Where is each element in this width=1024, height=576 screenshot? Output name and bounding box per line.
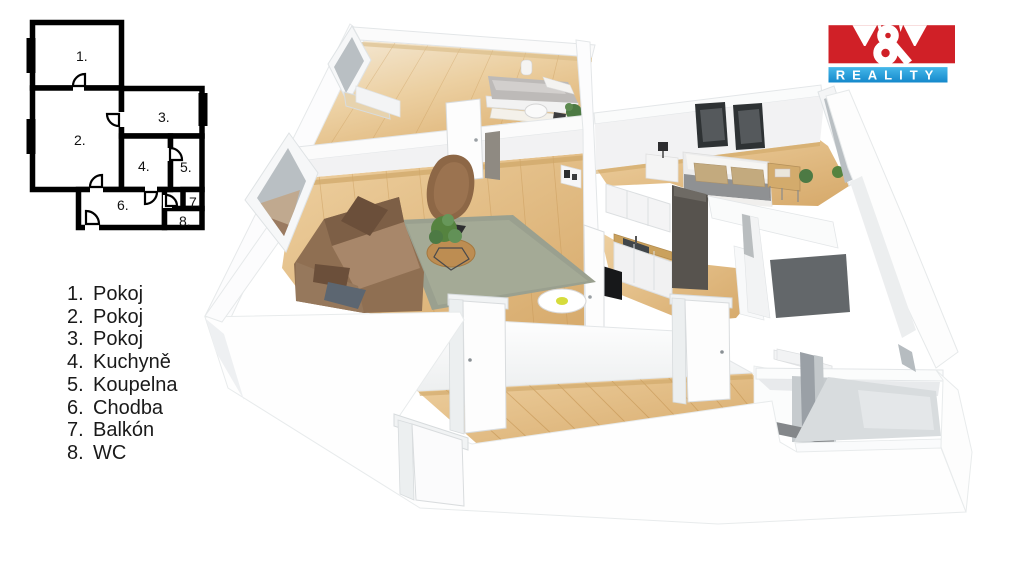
- svg-text:1.: 1.: [76, 48, 88, 64]
- svg-text:8.: 8.: [67, 442, 84, 464]
- svg-text:1.: 1.: [67, 283, 84, 305]
- svg-text:2.: 2.: [67, 306, 84, 328]
- svg-text:6.: 6.: [117, 197, 129, 213]
- svg-text:Pokoj: Pokoj: [93, 283, 143, 305]
- svg-text:5.: 5.: [180, 159, 192, 175]
- svg-text:5.: 5.: [67, 374, 84, 396]
- svg-text:2.: 2.: [74, 132, 86, 148]
- svg-text:3.: 3.: [67, 328, 84, 350]
- svg-text:7.: 7.: [67, 419, 84, 441]
- svg-text:7.: 7.: [189, 194, 201, 210]
- svg-text:REALITY: REALITY: [836, 68, 941, 83]
- svg-text:Kuchyně: Kuchyně: [93, 351, 171, 373]
- svg-text:6.: 6.: [67, 397, 84, 419]
- svg-text:4.: 4.: [138, 158, 150, 174]
- svg-text:3.: 3.: [158, 109, 170, 125]
- svg-text:Koupelna: Koupelna: [93, 374, 178, 396]
- svg-text:Balkón: Balkón: [93, 419, 154, 441]
- svg-text:WC: WC: [93, 442, 126, 464]
- svg-text:8.: 8.: [179, 213, 191, 229]
- svg-text:4.: 4.: [67, 351, 84, 373]
- svg-text:Chodba: Chodba: [93, 397, 164, 419]
- svg-text:Pokoj: Pokoj: [93, 306, 143, 328]
- svg-text:Pokoj: Pokoj: [93, 328, 143, 350]
